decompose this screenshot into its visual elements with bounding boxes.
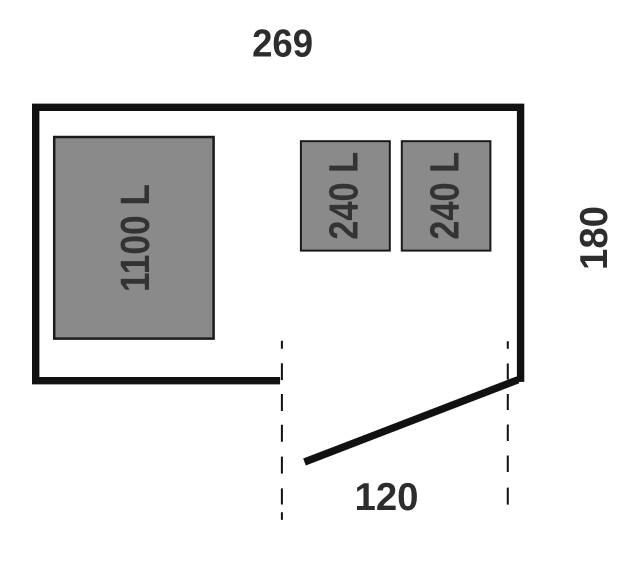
svg-text:269: 269	[252, 23, 313, 66]
svg-text:1100 L: 1100 L	[112, 184, 158, 292]
svg-text:240 L: 240 L	[321, 152, 367, 240]
svg-text:180: 180	[573, 206, 616, 270]
svg-text:240 L: 240 L	[422, 152, 468, 240]
svg-text:120: 120	[355, 476, 419, 519]
